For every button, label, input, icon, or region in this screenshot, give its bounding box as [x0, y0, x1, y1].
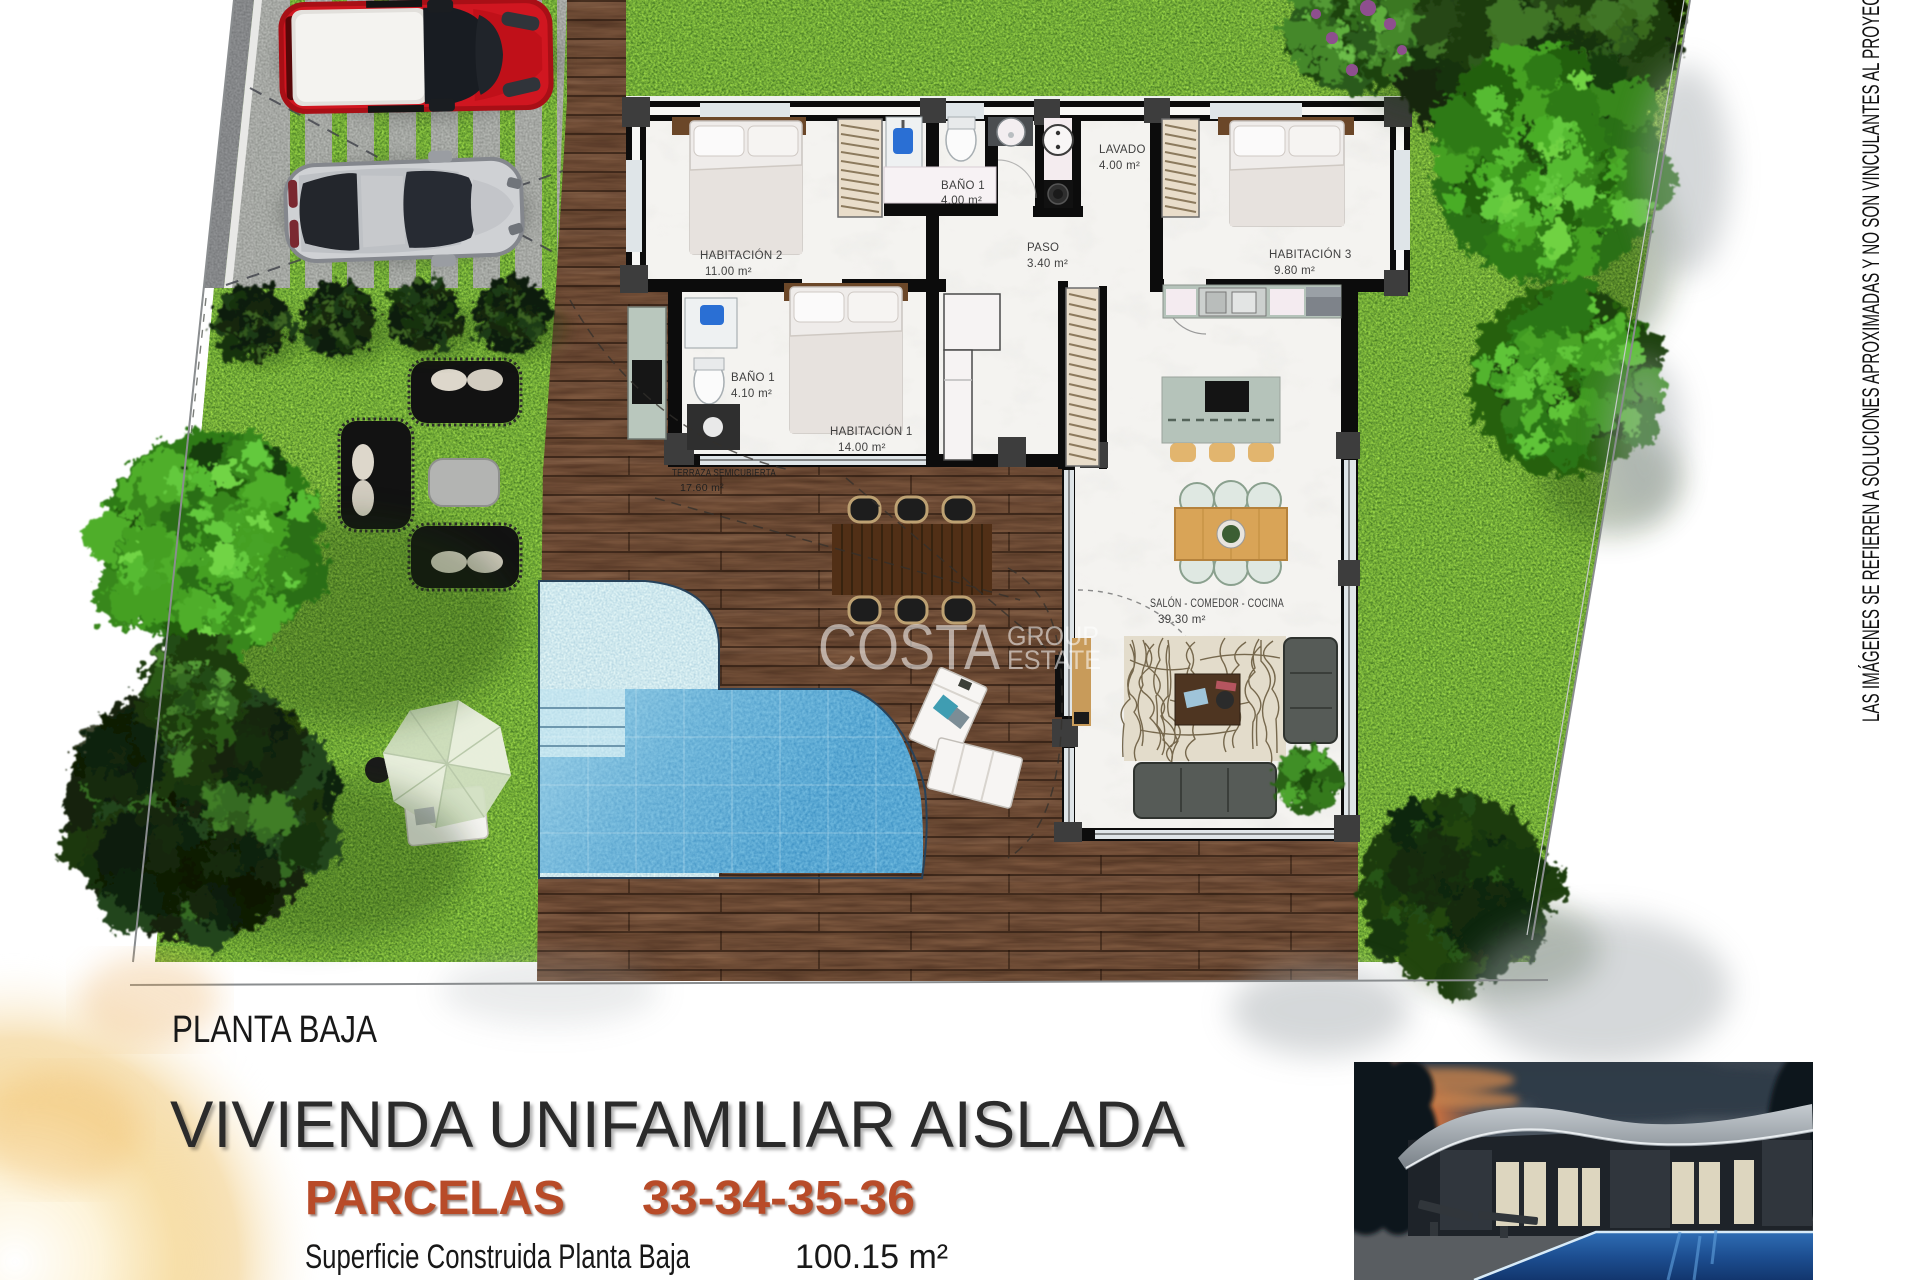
svg-text:11.00 m²: 11.00 m² [705, 266, 752, 278]
svg-text:9.80 m²: 9.80 m² [1274, 265, 1315, 277]
svg-text:LAVADO: LAVADO [1099, 144, 1146, 156]
svg-text:HABITACIÓN 3: HABITACIÓN 3 [1269, 248, 1352, 261]
svg-text:4.10 m²: 4.10 m² [731, 388, 772, 400]
svg-text:39.30 m²: 39.30 m² [1158, 614, 1206, 626]
svg-text:100.15 m²: 100.15 m² [795, 1238, 948, 1276]
svg-text:3.40 m²: 3.40 m² [1027, 258, 1068, 270]
svg-text:BAÑO 1: BAÑO 1 [731, 371, 775, 384]
svg-text:TERRAZA SEMICUBIERTA: TERRAZA SEMICUBIERTA [672, 468, 776, 479]
svg-text:VIVIENDA UNIFAMILIAR AISLADA: VIVIENDA UNIFAMILIAR AISLADA [170, 1087, 1185, 1161]
svg-text:4.00 m²: 4.00 m² [1099, 160, 1140, 172]
svg-text:33-34-35-36: 33-34-35-36 [642, 1172, 915, 1225]
svg-text:PLANTA BAJA: PLANTA BAJA [172, 1009, 378, 1051]
svg-text:14.00 m²: 14.00 m² [838, 442, 886, 454]
svg-text:HABITACIÓN 1: HABITACIÓN 1 [830, 425, 913, 438]
svg-text:SALÓN - COMEDOR - COCINA: SALÓN - COMEDOR - COCINA [1150, 597, 1284, 610]
svg-text:COSTA: COSTA [818, 611, 1000, 683]
svg-text:PASO: PASO [1027, 242, 1059, 254]
svg-text:ESTATE: ESTATE [1007, 645, 1101, 675]
svg-text:Superficie Construida Planta B: Superficie Construida Planta Baja [305, 1238, 690, 1276]
svg-text:LAS IMÁGENES SE REFIEREN A SOL: LAS IMÁGENES SE REFIEREN A SOLUCIONES AP… [1858, 0, 1885, 722]
svg-text:4.00 m²: 4.00 m² [941, 195, 982, 207]
svg-text:BAÑO 1: BAÑO 1 [941, 179, 985, 192]
svg-text:PARCELAS: PARCELAS [305, 1172, 565, 1225]
svg-text:HABITACIÓN 2: HABITACIÓN 2 [700, 249, 783, 262]
svg-text:17.60 m²: 17.60 m² [680, 483, 724, 494]
